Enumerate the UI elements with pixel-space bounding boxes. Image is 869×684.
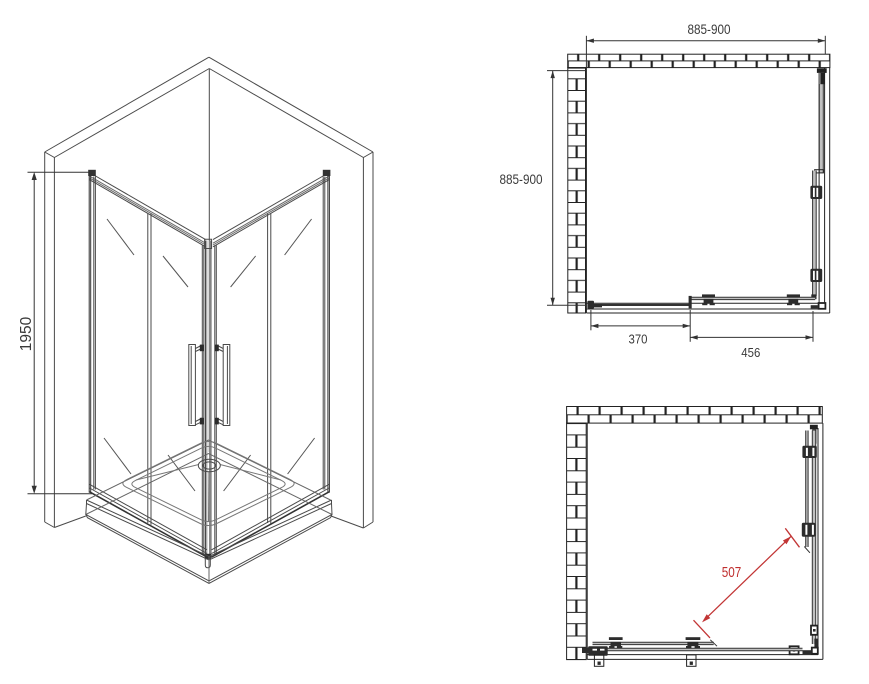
svg-text:885-900: 885-900 [688, 22, 731, 37]
svg-text:885-900: 885-900 [500, 172, 543, 187]
svg-text:456: 456 [741, 346, 760, 360]
svg-text:370: 370 [629, 333, 648, 347]
svg-text:1950: 1950 [18, 316, 35, 351]
svg-text:507: 507 [722, 564, 742, 581]
